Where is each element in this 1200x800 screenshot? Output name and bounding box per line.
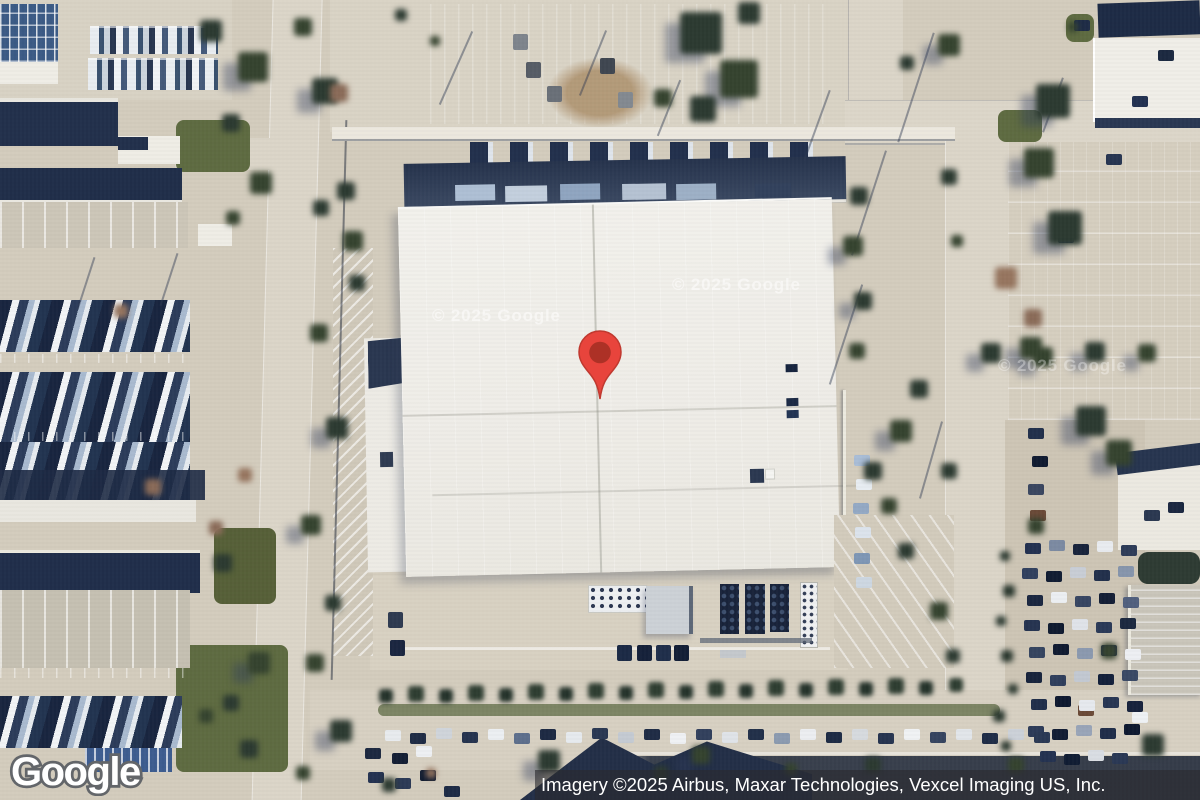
docked-trailer	[622, 183, 666, 200]
docked-trailer	[505, 185, 547, 202]
small-white-shed	[198, 224, 232, 246]
fence-south-line	[390, 647, 830, 650]
warehouse-roof-navy-3	[0, 550, 200, 593]
aisle-ticks-1	[0, 354, 185, 363]
google-logo-graphic: Google	[8, 746, 148, 796]
trailer-row-bottom	[0, 696, 182, 748]
hvac-fan-bank	[770, 584, 789, 632]
warehouse-roof-gray-1	[0, 202, 188, 248]
rooftop-unit	[380, 452, 393, 467]
hedge-right-building	[1138, 552, 1200, 584]
docked-trailer	[755, 183, 791, 198]
pole-shadow	[160, 253, 179, 306]
grass-patch-left-top	[176, 120, 250, 172]
warehouse-roof-gray-2	[0, 590, 190, 668]
hvac-pipes	[700, 638, 812, 643]
lot-right-parking	[1008, 142, 1200, 420]
grass-patch-left-bottom	[176, 645, 288, 772]
google-logo-text: Google	[11, 750, 140, 794]
satellite-map-canvas[interactable]: © 2025 Google © 2025 Google © 2025 Googl…	[0, 0, 1200, 800]
trailer-row-1	[0, 300, 190, 352]
dock-truck	[786, 364, 798, 372]
hvac-pipe-box	[720, 650, 746, 658]
pole-shadow	[919, 421, 943, 498]
parked-car-row-topleft-2	[88, 58, 218, 90]
road-vertical-top	[848, 0, 903, 105]
bare-tree-stamps	[0, 0, 2, 2]
hvac-white-unit	[588, 585, 647, 613]
warehouse-roof-navy-1	[0, 98, 118, 146]
warehouse-roof-navy-2	[0, 168, 182, 203]
building-far-right-gray-roof	[1128, 585, 1200, 695]
dirt-construction	[548, 58, 652, 128]
map-marker[interactable]	[577, 329, 623, 401]
fence-north	[332, 127, 955, 141]
hvac-gray-box	[646, 586, 693, 634]
grass-strip-hedge	[378, 704, 1000, 716]
warehouse-edge-band	[0, 500, 196, 522]
dock-truck	[787, 410, 799, 418]
hvac-fan-bank	[745, 584, 765, 634]
docked-trailer	[560, 183, 600, 200]
docked-trailer	[676, 183, 716, 200]
trailer-band-navy	[0, 470, 205, 500]
grass-strip-road-north	[998, 110, 1042, 142]
small-gable-roof-section	[118, 137, 148, 150]
grass-patch-left-mid	[214, 528, 276, 604]
grass-island-top-right	[1066, 14, 1094, 42]
google-watermark: © 2025 Google	[998, 356, 1127, 376]
truck-court-stripes	[834, 515, 954, 668]
google-logo[interactable]: Google	[8, 746, 148, 796]
map-marker-icon	[577, 329, 623, 401]
attribution-text: Imagery ©2025 Airbus, Maxar Technologies…	[535, 770, 1200, 800]
hvac-fan-bank	[720, 584, 739, 634]
google-watermark: © 2025 Google	[672, 275, 801, 295]
aisle-ticks-2	[0, 432, 185, 441]
rooftop-unit-white	[765, 468, 775, 479]
docked-trailer	[455, 184, 495, 201]
building-top-right-roof	[1093, 38, 1200, 122]
google-watermark: © 2025 Google	[432, 306, 561, 326]
building-top-right-navy-band	[1097, 0, 1200, 38]
pole-shadow	[851, 150, 887, 255]
building-top-right-south-band	[1095, 118, 1200, 128]
rooftop-unit	[750, 469, 764, 483]
dock-truck	[786, 398, 798, 406]
warehouse-edge-white	[0, 62, 58, 84]
truck-equipment-stamps	[0, 0, 15, 16]
attribution-bar: Imagery ©2025 Airbus, Maxar Technologies…	[535, 770, 1200, 800]
parked-car-row-topleft-1	[90, 26, 218, 54]
dock-ticks-row	[0, 668, 185, 678]
